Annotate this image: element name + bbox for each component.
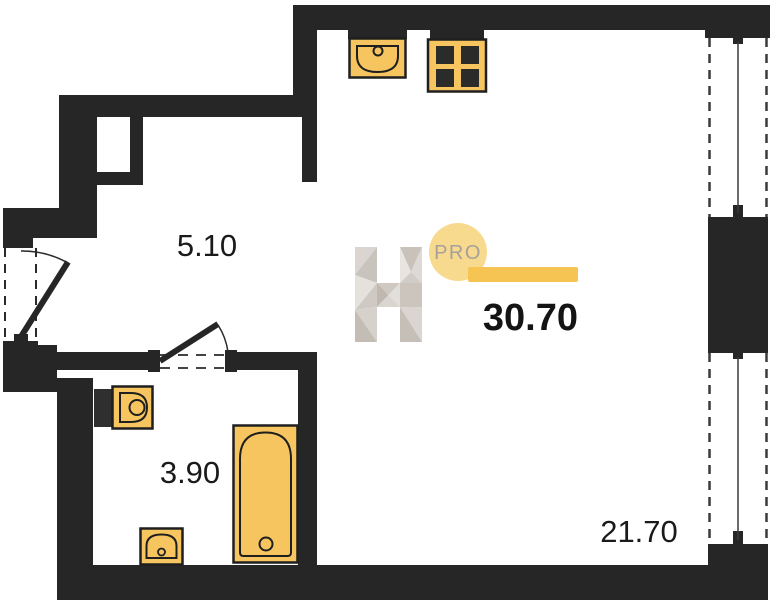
burner <box>436 69 454 87</box>
stove-icon <box>428 30 486 92</box>
total-area-label: 30.70 <box>483 297 578 339</box>
wall <box>3 208 97 238</box>
door-hinge <box>14 334 28 343</box>
wall <box>293 5 705 30</box>
bathtub-icon <box>234 426 298 563</box>
floor-plan: PRO 30.70 5.10 3.90 21.70 <box>0 0 772 600</box>
toilet-tank <box>94 389 113 427</box>
burner <box>436 46 454 64</box>
floor-plan-drawing: PRO 30.70 5.10 3.90 21.70 <box>0 0 772 600</box>
burner <box>461 46 479 64</box>
door-swing-arc <box>21 251 68 263</box>
window-frame <box>708 544 768 552</box>
accent-underline <box>468 267 578 282</box>
door-leaf <box>17 262 68 343</box>
wall <box>97 172 143 185</box>
door-leaf <box>160 324 218 361</box>
wall <box>59 95 317 117</box>
wall <box>298 352 317 600</box>
washbasin-icon <box>141 529 183 565</box>
room-area-hallway: 5.10 <box>177 228 237 263</box>
wall <box>30 352 150 370</box>
bathroom-door-jamb <box>148 350 160 372</box>
wall <box>708 225 768 345</box>
burner <box>461 69 479 87</box>
toilet-icon <box>94 387 153 429</box>
entrance-door-jamb <box>3 238 33 248</box>
logo-h-icon <box>355 247 422 342</box>
window-lower-icon <box>708 345 768 552</box>
door-swing-arc <box>218 325 228 352</box>
entrance-door-icon <box>5 248 68 343</box>
window-upper-icon <box>708 30 768 225</box>
pro-badge-label: PRO <box>434 242 482 264</box>
wall <box>302 117 317 182</box>
wall <box>57 565 768 600</box>
bathroom-door-jamb <box>225 350 237 372</box>
window-frame <box>708 217 768 225</box>
kitchen-sink-icon <box>348 30 407 78</box>
room-area-living-room: 21.70 <box>600 514 678 549</box>
room-area-bathroom: 3.90 <box>160 455 220 490</box>
wall <box>708 552 768 600</box>
bathroom-door-icon <box>160 324 228 368</box>
